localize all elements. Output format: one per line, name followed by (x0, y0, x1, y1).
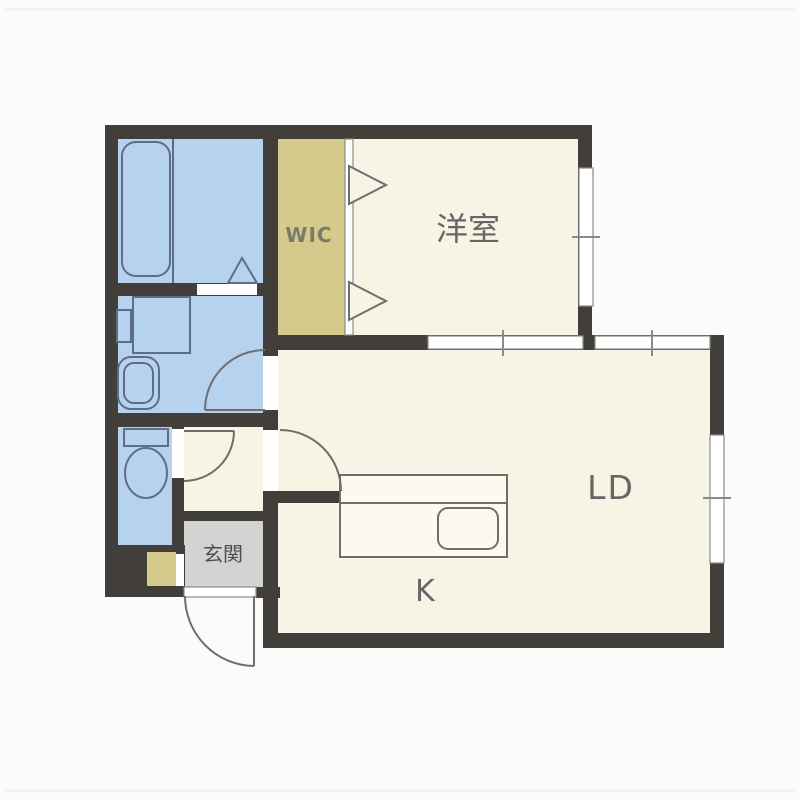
floor-plan: WIC 洋室 LD K 玄関 (0, 0, 800, 800)
kitchen-label: K (415, 574, 436, 609)
wall-top (105, 125, 590, 139)
entrance-threshold (184, 587, 256, 597)
floor-plan-canvas: WIC 洋室 LD K 玄関 (0, 0, 800, 800)
bathroom-door-opening (197, 284, 257, 295)
kitchen-counter (340, 475, 507, 557)
wall-kitchen-stub (263, 491, 341, 503)
wall-left (105, 125, 118, 597)
wall-hall-entrance-step (184, 511, 263, 521)
toilet-door-opening (172, 429, 184, 478)
western-room-sliding-door (428, 336, 583, 349)
entrance-door-arc (185, 596, 254, 666)
shoe-cabinet-side-strip (176, 554, 184, 586)
entrance-label: 玄関 (203, 542, 243, 566)
wall-washroom-bottom (105, 413, 278, 427)
living-dining-label: LD (587, 468, 635, 507)
walk-in-closet-label: WIC (285, 223, 332, 247)
shoe-cabinet (147, 552, 176, 586)
kitchen-door-opening (263, 430, 278, 491)
wall-threshold-right (256, 587, 280, 598)
wall-bottom (263, 633, 724, 648)
washroom-door-opening (263, 356, 278, 410)
western-room-label: 洋室 (436, 210, 500, 248)
hallway-floor (182, 425, 265, 513)
